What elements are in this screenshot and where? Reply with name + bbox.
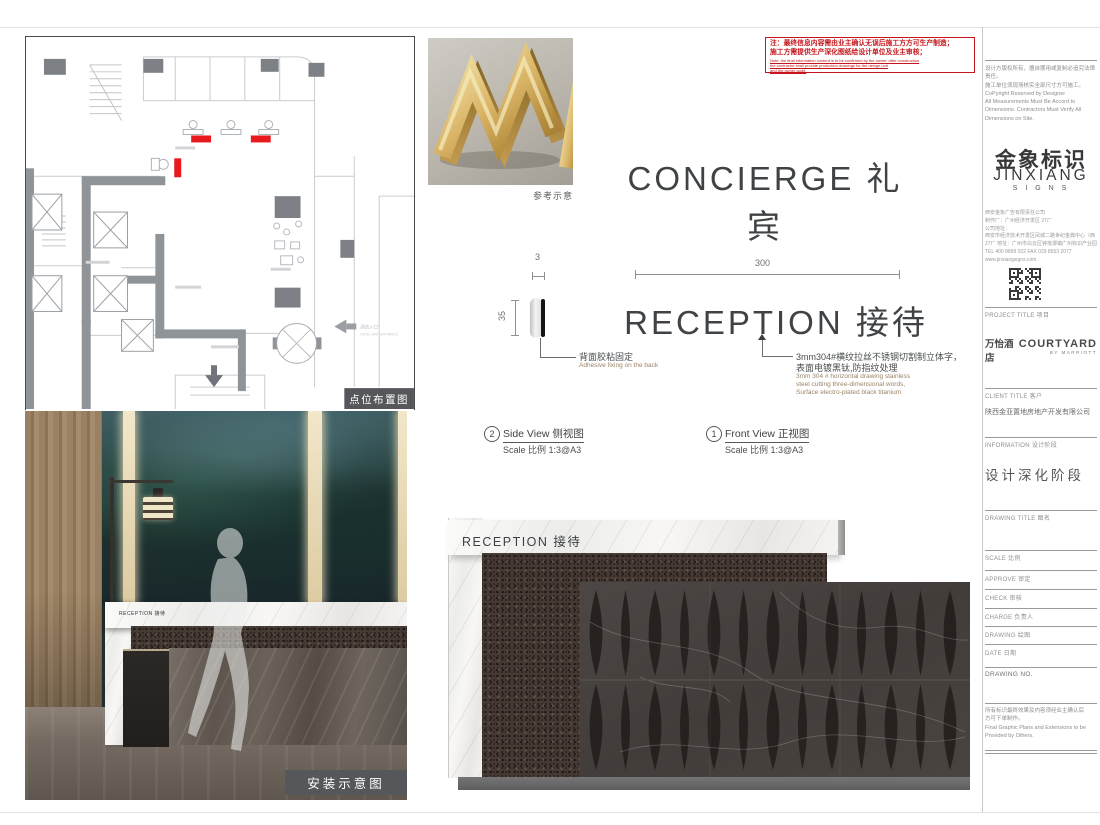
gold-letter-m: [428, 38, 573, 185]
titleblock-rule: [985, 589, 1097, 590]
titleblock-rule: [985, 437, 1097, 438]
front-view-scale-value: 1:3@A3: [771, 445, 804, 455]
project-name-en: COURTYARD: [1019, 338, 1097, 350]
sheet-bottom-rule: [0, 812, 1100, 813]
qr-code: [1009, 268, 1041, 300]
copyright-line: Dimensions on Site.: [985, 115, 1097, 123]
copyright-notes: 设计方版权所有，擅自挪用或复制必追究法律责任。 施工单位须现场核实全部尺寸方可施…: [985, 65, 1097, 123]
concierge-headline: CONCIERGE 礼宾: [610, 152, 920, 248]
copyright-line: CoPyright Reserved by Designer: [985, 90, 1097, 98]
note-line-cn1: 注：最终信息内容需由业主确认无误后施工方方可生产制造；: [770, 40, 970, 49]
elevation-dark-marble: [580, 582, 970, 778]
approve-label: APPROVE 审定: [985, 574, 1097, 583]
copyright-line: Dimensions. Contractors Must Verify All: [985, 106, 1097, 114]
leader-line: [762, 340, 763, 357]
down-arrow-icon: [205, 365, 223, 387]
dim-300-tick: [635, 270, 636, 279]
address-line: 27厂 地址：广州市白云区钟落潭镇广州标识产业园: [985, 241, 1097, 249]
leader-line: [762, 356, 793, 357]
titleblock-rule: [985, 60, 1097, 61]
scale-label: SCALE 比例: [985, 553, 1097, 562]
elevator-icons: [32, 194, 153, 351]
install-caption-bar: 安装示意图: [285, 770, 407, 795]
material-en3: Surface electro-plated black titanium: [796, 389, 901, 398]
dim-35-line: [515, 300, 516, 336]
company-address: 西安金象广告有限责任公司 制作厂：广州经济开发区 27厂 公司地址： 西安市经济…: [985, 210, 1097, 264]
drawing-title-label: DRAWING TITLE 图名: [985, 513, 1097, 522]
elevation-counter-band: RECEPTION 接待: [448, 520, 838, 555]
back-fix-en: Adhesive fixing on the back: [579, 362, 658, 371]
footnote-line: Final Graphic Plans and Extensions to be: [985, 724, 1097, 732]
side-view-title: Side View 侧视图: [503, 426, 584, 443]
installation-render-panel: RECEPTION 接待 安装示意图: [25, 411, 407, 800]
titleblock-footnote: 所有标识最终效果及内容须经业主确认后 方可下单制作。 Final Graphic…: [985, 707, 1097, 740]
address-line: www.jinxiangsigns.com: [985, 257, 1097, 265]
side-view-profile: [530, 298, 546, 338]
address-line: 制作厂：广州经济开发区 27厂: [985, 218, 1097, 226]
front-view-scale-label: Scale 比例: [725, 445, 768, 455]
footnote-line: 方可下单制作。: [985, 715, 1097, 723]
note-line-cn2: 施工方需提供生产深化图纸给设计单位及业主审核；: [770, 49, 970, 58]
brand-logo-sub: S I G N S: [985, 185, 1097, 192]
titleblock-rule: [985, 608, 1097, 609]
address-line: 西安金象广告有限责任公司: [985, 210, 1097, 218]
dim-35-label: 35: [497, 311, 507, 321]
dim-3-tick: [532, 272, 533, 280]
address-line: TEL 400 8899 022 FAX 029 8653 2077: [985, 249, 1097, 257]
elevation-render: RECEPTION 接待: [448, 518, 970, 790]
project-name-sub: BY MARRIOTT: [985, 350, 1097, 355]
design-phase: 设计深化阶段: [985, 464, 1097, 484]
side-view-scale-label: Scale 比例: [503, 445, 546, 455]
footnote-line: 所有标识最终效果及内容须经业主确认后: [985, 707, 1097, 715]
titleblock-rule: [985, 510, 1097, 511]
elevation-speckle-column: [482, 553, 580, 778]
floor-plan-drawing: 酒店入口 HOTEL MAIN ENTRANCE 点位布置图: [26, 37, 414, 409]
elevation-base-strip: [458, 777, 970, 790]
reference-photo: [428, 38, 573, 185]
titleblock-rule: [985, 644, 1097, 645]
note-line-en3: and the owner audit.: [770, 68, 970, 73]
copyright-line: 设计方版权所有，擅自挪用或复制必追究法律责任。: [985, 65, 1097, 82]
titleblock-rule: [985, 703, 1097, 704]
charge-label: CHARGE 负责人: [985, 612, 1097, 621]
leader-line: [540, 357, 576, 358]
leader-line: [540, 338, 541, 358]
reference-caption: 参考示意: [500, 189, 573, 202]
letter-profile-face: [541, 299, 545, 337]
client-name: 陕西金亚置地房地产开发有限公司: [985, 407, 1097, 417]
elevation-band-edge: [838, 520, 845, 555]
titleblock-rule: [985, 550, 1097, 551]
dim-3-label: 3: [535, 252, 540, 262]
brand-logo-en: JINXIANG: [985, 167, 1097, 185]
plan-light-walls: [34, 57, 414, 409]
entrance-label-en: HOTEL MAIN ENTRANCE: [360, 332, 398, 336]
info-label: INFORMATION 设计阶段: [985, 440, 1097, 449]
titleblock-rule: [985, 667, 1097, 668]
revolving-door-icon: [277, 323, 317, 363]
install-caption: 安装示意图: [307, 773, 385, 792]
drawing-sheet: 酒店入口 HOTEL MAIN ENTRANCE 点位布置图: [0, 0, 1100, 825]
sheet-top-rule: [0, 27, 1100, 28]
person-silhouette: [25, 411, 407, 800]
drawing-label: DRAWING 绘图: [985, 630, 1097, 639]
titleblock-rule: [985, 570, 1097, 571]
entrance-arrow-icon: [334, 319, 356, 333]
copyright-line: 施工单位须现场核实全部尺寸方可施工。: [985, 82, 1097, 90]
titleblock-rule: [985, 626, 1097, 627]
dim-300-tick: [899, 270, 900, 279]
client-label: CLIENT TITLE 客户: [985, 391, 1097, 400]
desk-icons: [151, 121, 278, 171]
copyright-line: All Measurements Must Be Accord to: [985, 98, 1097, 106]
check-label: CHECK 审核: [985, 593, 1097, 602]
plan-caption: 点位布置图: [349, 393, 409, 406]
side-view-number: 2: [484, 426, 500, 442]
dim-35-tick: [511, 300, 519, 301]
footnote-line: Provided by Others.: [985, 732, 1097, 740]
elevation-marble-column: [448, 518, 483, 778]
dim-35-tick: [511, 335, 519, 336]
entrance-label-cn: 酒店入口: [360, 323, 378, 330]
production-note-box: 注：最终信息内容需由业主确认无误后施工方方可生产制造； 施工方需提供生产深化图纸…: [765, 37, 975, 73]
dim-3-tick: [544, 272, 545, 280]
side-view-scale-value: 1:3@A3: [549, 445, 582, 455]
titleblock-rule: [985, 753, 1097, 754]
sign-location-markers: [174, 135, 270, 177]
titleblock-rule: [985, 307, 1097, 308]
floor-plan-panel: 酒店入口 HOTEL MAIN ENTRANCE 点位布置图: [25, 36, 415, 410]
address-line: 西安市经济技术开发区凤城二路世纪金典中心（西: [985, 233, 1097, 241]
titleblock-rule: [985, 388, 1097, 389]
titleblock-rule: [985, 750, 1097, 751]
drawing-no-label: DRAWING NO.: [985, 671, 1097, 678]
reception-sign-drawing: RECEPTION 接待: [620, 296, 932, 344]
date-label: DATE 日期: [985, 648, 1097, 657]
titleblock-divider: [982, 27, 983, 812]
front-view-number: 1: [706, 426, 722, 442]
front-view-title: Front View 正视图: [725, 426, 809, 443]
elevation-sign-text: RECEPTION 接待: [462, 531, 581, 550]
dim-300-label: 300: [755, 258, 770, 268]
seating-icons: [274, 221, 304, 265]
dim-300-line: [635, 274, 900, 275]
project-label: PROJECT TITLE 项目: [985, 310, 1097, 319]
